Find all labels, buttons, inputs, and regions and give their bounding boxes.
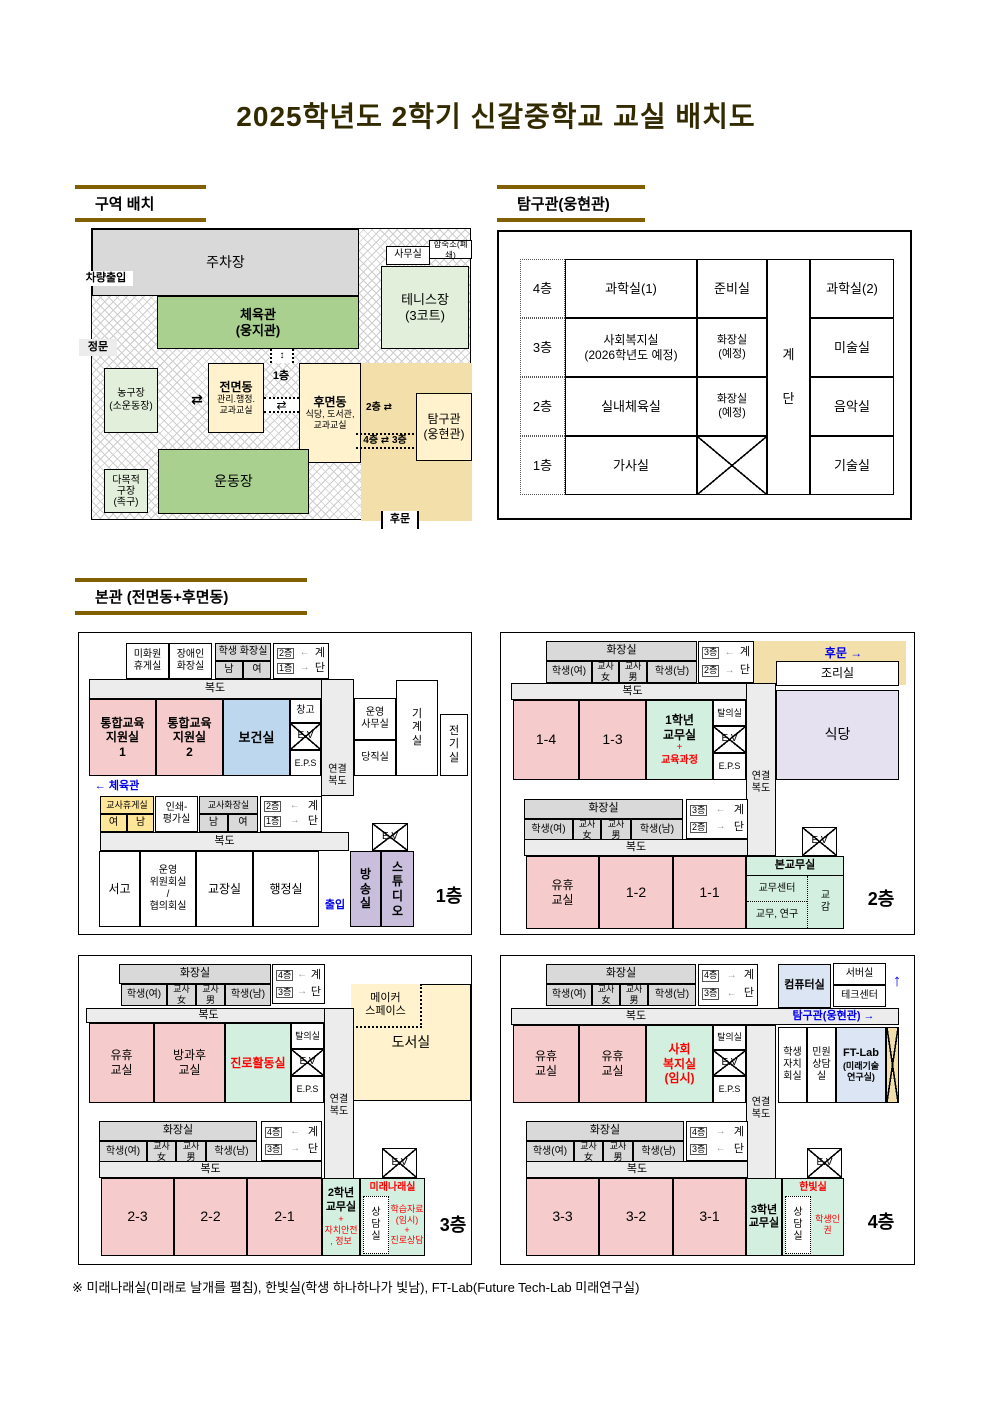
toilet-teacher-female: 교사 女 (592, 661, 619, 683)
elevator: E.V (382, 1148, 417, 1178)
stairs-arrow: ← (721, 647, 738, 659)
stairs-row: 3층 ← 단 (690, 1141, 744, 1158)
elevator: E.V (802, 827, 837, 856)
stairs-floor: 2층 (277, 648, 294, 660)
classroom-1-1: 1-1 (673, 856, 746, 929)
stairs-gye: 계 (308, 800, 318, 813)
front-building: 전면동 관리.행정. 교과교실 (208, 363, 264, 433)
toilet-teacher-male: 교사 男 (619, 661, 647, 683)
stairs-floor: 1층 (277, 663, 294, 675)
floor-cell: 1층 (520, 436, 565, 495)
accessible-toilet: 장애인 화장실 (169, 643, 212, 679)
classroom-3-1: 3-1 (673, 1178, 746, 1256)
stairs-indicator: 2층 ← 계 1층 → 단 (260, 796, 322, 832)
basketball-court: 농구장 (소운동장) (104, 368, 158, 433)
toilet-student-male: 학생(남) (647, 661, 697, 683)
stairs-dan: 단 (311, 986, 321, 999)
counsel-room: 상 담 실 (363, 1196, 389, 1254)
toilet-teacher-female: 교사 女 (147, 1141, 176, 1163)
toilet-student-male: 학생(남) (206, 1141, 257, 1163)
campus-office: 사무실 (386, 246, 430, 265)
connecting-corridor-label: 연결 복도 (746, 1094, 776, 1124)
main-office-header: 본교무실 (747, 857, 843, 876)
stairs-indicator: 4층 → 계 3층 ← 단 (686, 1121, 748, 1161)
front-building-sub: 관리.행정. 교과교실 (217, 394, 255, 416)
classroom-1-3: 1-3 (579, 700, 646, 780)
stairs-row: 1층 → 단 (264, 814, 318, 829)
toilet-student-female: 학생(여) (546, 984, 592, 1006)
cafeteria: 식당 (776, 690, 899, 780)
welfare-room: 사회 복지실 (임시) (646, 1025, 713, 1103)
section-bar (75, 218, 206, 222)
room-cell: 미술실 (810, 318, 894, 377)
stairs-dan: 단 (744, 987, 754, 1000)
stairs-row: 3층 ← 계 (702, 644, 750, 662)
spare-classroom: 유휴 교실 (89, 1023, 154, 1103)
tamgu-table: 4층 3층 2층 1층 과학실(1) 사회복지실 (2026학년도 예정) 실내… (497, 230, 912, 520)
stairs-floor: 3층 (690, 1144, 707, 1156)
rear-building-name: 후면동 (313, 395, 346, 410)
stairs-gye: 계 (734, 1126, 744, 1139)
connecting-corridor-label: 연결 복도 (324, 1091, 354, 1121)
floor-badge: 4층 (859, 1211, 903, 1235)
electric-room: 전 기 실 (440, 714, 468, 776)
classroom-1-4: 1-4 (513, 700, 579, 780)
stairs-row: 2층 ← 계 (277, 646, 325, 661)
toilet-header: 화장실 (546, 641, 697, 661)
stairs-gye: 계 (311, 969, 321, 982)
archive-room: 서고 (99, 851, 140, 927)
stairs-row: 3층 → 단 (265, 1141, 318, 1158)
toilet-teacher-female: 교사 女 (592, 984, 620, 1006)
front-rear-bridge: ⇄ (264, 397, 299, 413)
mirae-narae-room: 미래나래실 상 담 실 학습자료 (임시) + 진로상담 (360, 1178, 425, 1256)
civil-counsel-room: 민원 상담 실 (807, 1027, 836, 1103)
classroom-2-1: 2-1 (247, 1178, 322, 1256)
toilet-student-female: 학생(여) (121, 984, 167, 1006)
tennis-court: 테니스장 (3코트) (381, 266, 469, 349)
hanbit-header: 한빛실 (783, 1179, 843, 1196)
toilet-header: 화장실 (546, 964, 696, 984)
elevator: E.V (713, 726, 746, 753)
stairs-row: 4층 → 계 (690, 1124, 744, 1141)
gym-connector: ↕ (270, 349, 294, 363)
section-main: 본관 (전면동+후면동) (75, 578, 307, 615)
corridor: 복도 (100, 832, 349, 851)
floor-badge: 2층 (859, 888, 903, 912)
page: 2025학년도 2학기 신갈중학교 교실 배치도 구역 배치 탐구관(웅현관) … (0, 0, 992, 1403)
floor-badge: 1층 (427, 885, 471, 909)
stairs-arrow: → (709, 1126, 732, 1138)
floor1-link-label: 1층 (268, 369, 294, 385)
student-rights-label: 학생인권 (811, 1196, 844, 1254)
duty-room: 당직실 (354, 740, 396, 776)
room-cell: 준비실 (697, 259, 767, 318)
grade1-office: 1학년 교무실 + 교육과정 (646, 700, 713, 780)
corridor: 복도 (86, 1008, 331, 1023)
committee-room: 운영 위원회실 / 협의회실 (140, 851, 196, 927)
stairs-arrow: → (295, 986, 309, 998)
link-2f-label: 2층 ⇄ (358, 401, 400, 415)
ft-lab-sub: (미래기술 연구실) (843, 1061, 879, 1083)
teacher-toilet-header: 교사화장실 (199, 796, 258, 814)
room-cell: 화장실 (예정) (697, 377, 767, 436)
footnote: ※ 미래나래실(미래로 날개를 펼침), 한빛실(학생 하나하나가 빛남), F… (72, 1277, 952, 1296)
gyomu-research: 교무, 연구 (747, 902, 807, 928)
main-teachers-office: 본교무실 교무센터 교무, 연구 교 감 (746, 856, 844, 929)
stairs-row: 4층 → 계 (702, 967, 754, 985)
room-cell: 과학실(2) (810, 259, 894, 318)
operation-office: 운영 사무실 (354, 698, 396, 740)
admin-office: 행정실 (253, 851, 319, 927)
toilet-male: 남 (215, 661, 243, 679)
stairs-arrow: ← (283, 800, 306, 812)
toilet-header: 화장실 (119, 964, 271, 984)
broadcast-room: 방 송 실 (350, 851, 381, 927)
teacher-rest-female: 여 (100, 814, 127, 832)
floor2-plan: 화장실 학생(여) 교사 女 교사 男 학생(남) 3층 ← 계 2층 → 단 … (500, 632, 915, 935)
tamgu-direction-label: 탐구관(웅현관) → (771, 1009, 896, 1024)
toilet-female: 여 (228, 814, 258, 832)
elevator: E.V (713, 1050, 746, 1076)
tamgu-building: 탐구관 (웅현관) (416, 393, 472, 461)
classroom-1-2: 1-2 (599, 856, 673, 929)
studio-room: 스 튜 디 오 (381, 851, 414, 927)
grade2-office-label: 2학년 교무실 (326, 1187, 356, 1214)
toilet-student-male: 학생(남) (648, 984, 696, 1006)
eps-room: E.P.S (713, 1076, 746, 1103)
grade2-office: 2학년 교무실 + 자치안전 , 정보 (322, 1178, 360, 1256)
stairs-indicator: 4층 ← 계 3층 → 단 (272, 964, 325, 1004)
ft-lab-label: FT-Lab (843, 1047, 879, 1060)
toilet-female: 여 (243, 661, 271, 679)
backgate-direction-label: 후문 → (791, 645, 896, 661)
room-cell: 사회복지실 (2026학년도 예정) (565, 318, 697, 377)
cleaner-rest-room: 미화원 휴게실 (126, 643, 169, 679)
classroom-3-2: 3-2 (599, 1178, 673, 1256)
room-cell: 화장실 (예정) (697, 318, 767, 377)
stairs-indicator: 3층 ← 계 2층 → 단 (686, 799, 748, 839)
changing-room: 탈의실 (291, 1023, 324, 1049)
classroom-2-2: 2-2 (174, 1178, 247, 1256)
room-cell: 음악실 (810, 377, 894, 436)
stairs-column: 계 단 (767, 259, 810, 495)
stairs-arrow: ← (709, 804, 732, 816)
section-bar (75, 611, 307, 615)
kitchen-room: 조리실 (776, 661, 899, 686)
corridor: 복도 (511, 683, 754, 700)
stairs-dan: 단 (740, 664, 750, 677)
vice-principal: 교 감 (807, 876, 843, 928)
corridor-label: 복도 (616, 1009, 656, 1024)
stairs-row: 4층 ← 계 (265, 1124, 318, 1141)
playground: 운동장 (158, 449, 309, 514)
stairs-dan: 단 (734, 821, 744, 834)
ft-lab: FT-Lab (미래기술 연구실) (836, 1027, 886, 1103)
spare-classroom: 유휴 교실 (579, 1025, 646, 1103)
floor4-plan: 화장실 학생(여) 교사 女 교사 男 학생(남) 4층 → 계 3층 ← 단 … (500, 955, 915, 1265)
stairs-indicator: 4층 ← 계 3층 → 단 (261, 1121, 322, 1161)
room-cell: 과학실(1) (565, 259, 697, 318)
corridor: 복도 (99, 1161, 322, 1178)
stairs-row: 2층 ← 계 (264, 799, 318, 814)
back-gate-label: 후문 (381, 511, 419, 529)
stairs-row: 3층 ← 단 (702, 985, 754, 1003)
stairs-floor: 4층 (702, 970, 719, 982)
hanbit-room: 한빛실 상 담 실 학생인권 (782, 1178, 844, 1256)
student-council-room: 학생 자치 회실 (778, 1027, 807, 1103)
toilet-male: 남 (199, 814, 228, 832)
curriculum-label: 교육과정 (661, 755, 698, 767)
section-main-label: 본관 (전면동+후면동) (75, 582, 307, 611)
toilet-teacher-female: 교사 女 (574, 1141, 603, 1163)
rear-building-sub: 식당, 도서관, 교과교실 (306, 409, 355, 431)
stairs-indicator: 3층 ← 계 2층 → 단 (698, 641, 754, 683)
counsel-room: 상 담 실 (785, 1196, 811, 1254)
main-gate-label: 정문 (79, 339, 117, 356)
corridor: 복도 (524, 839, 748, 856)
stairs-arrow: → (284, 1143, 306, 1155)
floor1-plan: 미화원 휴게실 장애인 화장실 학생 화장실 남 여 2층 ← 계 1층 → 단… (78, 632, 472, 935)
floor-badge: 3층 (431, 1214, 475, 1238)
stairs-floor: 2층 (690, 822, 707, 834)
toilet-student-female: 학생(여) (546, 661, 592, 683)
floor3-plan: 화장실 학생(여) 교사 女 교사 男 학생(남) 4층 ← 계 3층 → 단 … (78, 955, 472, 1265)
tech-center: 테크센터 (833, 985, 886, 1007)
crossed-cell (697, 436, 767, 495)
rear-building: 후면동 식당, 도서관, 교과교실 (299, 363, 361, 463)
room-tonghap1: 통합교육 지원실 1 (89, 699, 156, 776)
career-activity-room: 진로활동실 (225, 1023, 291, 1103)
section-bar (497, 218, 645, 222)
machine-room: 기 계 실 (396, 680, 438, 776)
stairs-gye: 계 (734, 804, 744, 817)
stairs-arrow: ← (284, 1126, 306, 1138)
storage-room: 창고 (290, 699, 321, 723)
campus-map: 주차장 체육관 (웅지관) 사무실 합숙소(폐쇄) 테니스장 (3코트) 농구장… (91, 228, 471, 520)
computer-room: 컴퓨터실 (778, 964, 831, 1008)
stairs-arrow: → (296, 662, 313, 674)
stairs-floor: 2층 (264, 801, 281, 813)
toilet-header: 화장실 (99, 1121, 257, 1141)
after-school-room: 방과후 교실 (154, 1023, 225, 1103)
server-room: 서버실 (833, 963, 886, 985)
stairs-floor: 4층 (690, 1127, 707, 1139)
stairs-floor: 4층 (265, 1127, 282, 1139)
bridge-strip (886, 1027, 899, 1103)
floor-cell: 4층 (520, 259, 565, 318)
spare-classroom: 유휴 교실 (513, 1025, 579, 1103)
eps-room: E.P.S (713, 753, 746, 780)
stairs-arrow: → (283, 815, 306, 827)
health-room: 보건실 (223, 699, 290, 776)
elevator: E.V (290, 723, 321, 750)
changing-room: 탈의실 (713, 1025, 746, 1050)
classroom-3-3: 3-3 (526, 1178, 599, 1256)
principal-office: 교장실 (196, 851, 253, 927)
room-cell: 가사실 (565, 436, 697, 495)
study-material-room: 학습자료 (임시) + 진로상담 (389, 1196, 425, 1254)
toilet-teacher-male: 교사 男 (196, 984, 225, 1006)
stairs-arrow: → (721, 665, 738, 677)
plus-sign: + (677, 742, 683, 754)
corridor: 복도 (89, 679, 341, 699)
section-zone: 구역 배치 (75, 185, 206, 222)
stairs-row: 2층 → 단 (702, 662, 750, 680)
eps-room: E.P.S (290, 750, 321, 776)
stairs-floor: 3층 (265, 1144, 282, 1156)
stairs-row: 3층 → 단 (276, 984, 321, 1001)
stairs-floor: 1층 (264, 816, 281, 828)
stairs-arrow: → (709, 821, 732, 833)
elevator: E.V (372, 823, 408, 851)
dormitory-closed: 합숙소(폐쇄) (429, 240, 472, 259)
grade3-office: 3학년 교무실 (746, 1178, 782, 1256)
mirae-narae-header: 미래나래실 (361, 1179, 424, 1196)
stairs-floor: 3층 (276, 987, 293, 999)
stairs-floor: 3층 (702, 988, 719, 1000)
teacher-rest-header: 교사휴게실 (100, 796, 154, 814)
elevator: E.V (807, 1148, 842, 1178)
spare-classroom: 유휴 교실 (526, 856, 599, 929)
toilet-header: 화장실 (526, 1121, 684, 1141)
vehicle-entry-label: 차량출입 (79, 271, 133, 286)
stairs-dan: 단 (308, 815, 318, 828)
gym-direction-label: ← 체육관 (81, 780, 153, 794)
gymnasium: 체육관 (웅지관) (157, 296, 359, 349)
stairs-arrow: ← (296, 647, 313, 659)
stairs-arrow: ← (721, 988, 742, 1000)
print-evaluation-room: 인쇄- 평가실 (155, 796, 198, 832)
stairs-floor: 4층 (276, 970, 293, 982)
elevator: E.V (291, 1049, 324, 1076)
toilet-student-female: 학생(여) (526, 1141, 574, 1163)
teacher-rest-male: 남 (127, 814, 154, 832)
maker-space: 메이커 스페이스 (351, 984, 422, 1028)
student-toilet-header: 학생 화장실 (215, 643, 271, 661)
toilet-student-female: 학생(여) (524, 819, 573, 841)
room-cell: 실내체육실 (565, 377, 697, 436)
connecting-corridor-label: 연결 복도 (746, 768, 776, 798)
section-zone-label: 구역 배치 (75, 189, 206, 218)
stairs-gye: 계 (308, 1126, 318, 1139)
stairs-dan: 단 (734, 1143, 744, 1156)
toilet-teacher-male: 교사 男 (176, 1141, 206, 1163)
floor-cell: 3층 (520, 318, 565, 377)
toilet-teacher-male: 교사 男 (603, 1141, 633, 1163)
eps-room: E.P.S (291, 1076, 324, 1103)
stairs-gye: 계 (740, 646, 750, 659)
section-tamgu-label: 탐구관(웅현관) (497, 189, 645, 218)
stairs-dan: 단 (308, 1143, 318, 1156)
stairs-row: 3층 ← 계 (690, 802, 744, 819)
stairs-floor: 3층 (702, 647, 719, 659)
floor-cell: 2층 (520, 377, 565, 436)
front-building-name: 전면동 (219, 380, 252, 395)
toilet-student-male: 학생(남) (633, 1141, 684, 1163)
toilet-teacher-female: 교사 女 (573, 819, 601, 841)
toilet-student-female: 학생(여) (99, 1141, 147, 1163)
stairs-row: 4층 ← 계 (276, 967, 321, 984)
entrance-label: 출입 (320, 899, 350, 912)
corridor: 복도 (526, 1161, 748, 1178)
stairs-gye: 계 (315, 647, 325, 660)
changing-room: 탈의실 (713, 700, 746, 726)
page-title: 2025학년도 2학기 신갈중학교 교실 배치도 (0, 95, 992, 135)
room-cell: 기술실 (810, 436, 894, 495)
toilet-student-male: 학생(남) (631, 819, 683, 841)
toilet-student-male: 학생(남) (225, 984, 271, 1006)
grade1-office-label: 1학년 교무실 (663, 713, 696, 742)
stairs-indicator: 4층 → 계 3층 ← 단 (698, 964, 758, 1006)
link-4f3f-label: 4층 ⇄ 3층 (356, 433, 414, 449)
stairs-gye: 계 (744, 969, 754, 982)
toilet-teacher-female: 교사 女 (167, 984, 196, 1006)
stairs-row: 2층 → 단 (690, 819, 744, 836)
stairs-dan: 단 (315, 662, 325, 675)
classroom-2-3: 2-3 (101, 1178, 174, 1256)
toilet-header: 화장실 (524, 799, 683, 819)
stairs-arrow: ← (295, 969, 309, 981)
multi-purpose-court: 다목적 구장 (족구) (104, 469, 148, 513)
grade2-office-sub: + 자치안전 , 정보 (324, 1214, 357, 1247)
gyomu-center: 교무센터 (747, 876, 807, 902)
connecting-corridor-label: 연결 복도 (321, 761, 354, 791)
basketball-front-arrow: ⇄ (186, 391, 208, 407)
stairs-arrow: → (721, 970, 742, 982)
stairs-floor: 2층 (702, 665, 719, 677)
stairs-indicator: 2층 ← 계 1층 → 단 (273, 643, 329, 679)
section-tamgu: 탐구관(웅현관) (497, 185, 645, 222)
toilet-teacher-male: 교사 男 (620, 984, 648, 1006)
stairs-arrow: ← (709, 1143, 732, 1155)
toilet-teacher-male: 교사 男 (601, 819, 631, 841)
room-tonghap2: 통합교육 지원실 2 (156, 699, 223, 776)
up-arrow-icon: ↑ (889, 966, 905, 996)
stairs-row: 1층 → 단 (277, 661, 325, 676)
stairs-floor: 3층 (690, 805, 707, 817)
